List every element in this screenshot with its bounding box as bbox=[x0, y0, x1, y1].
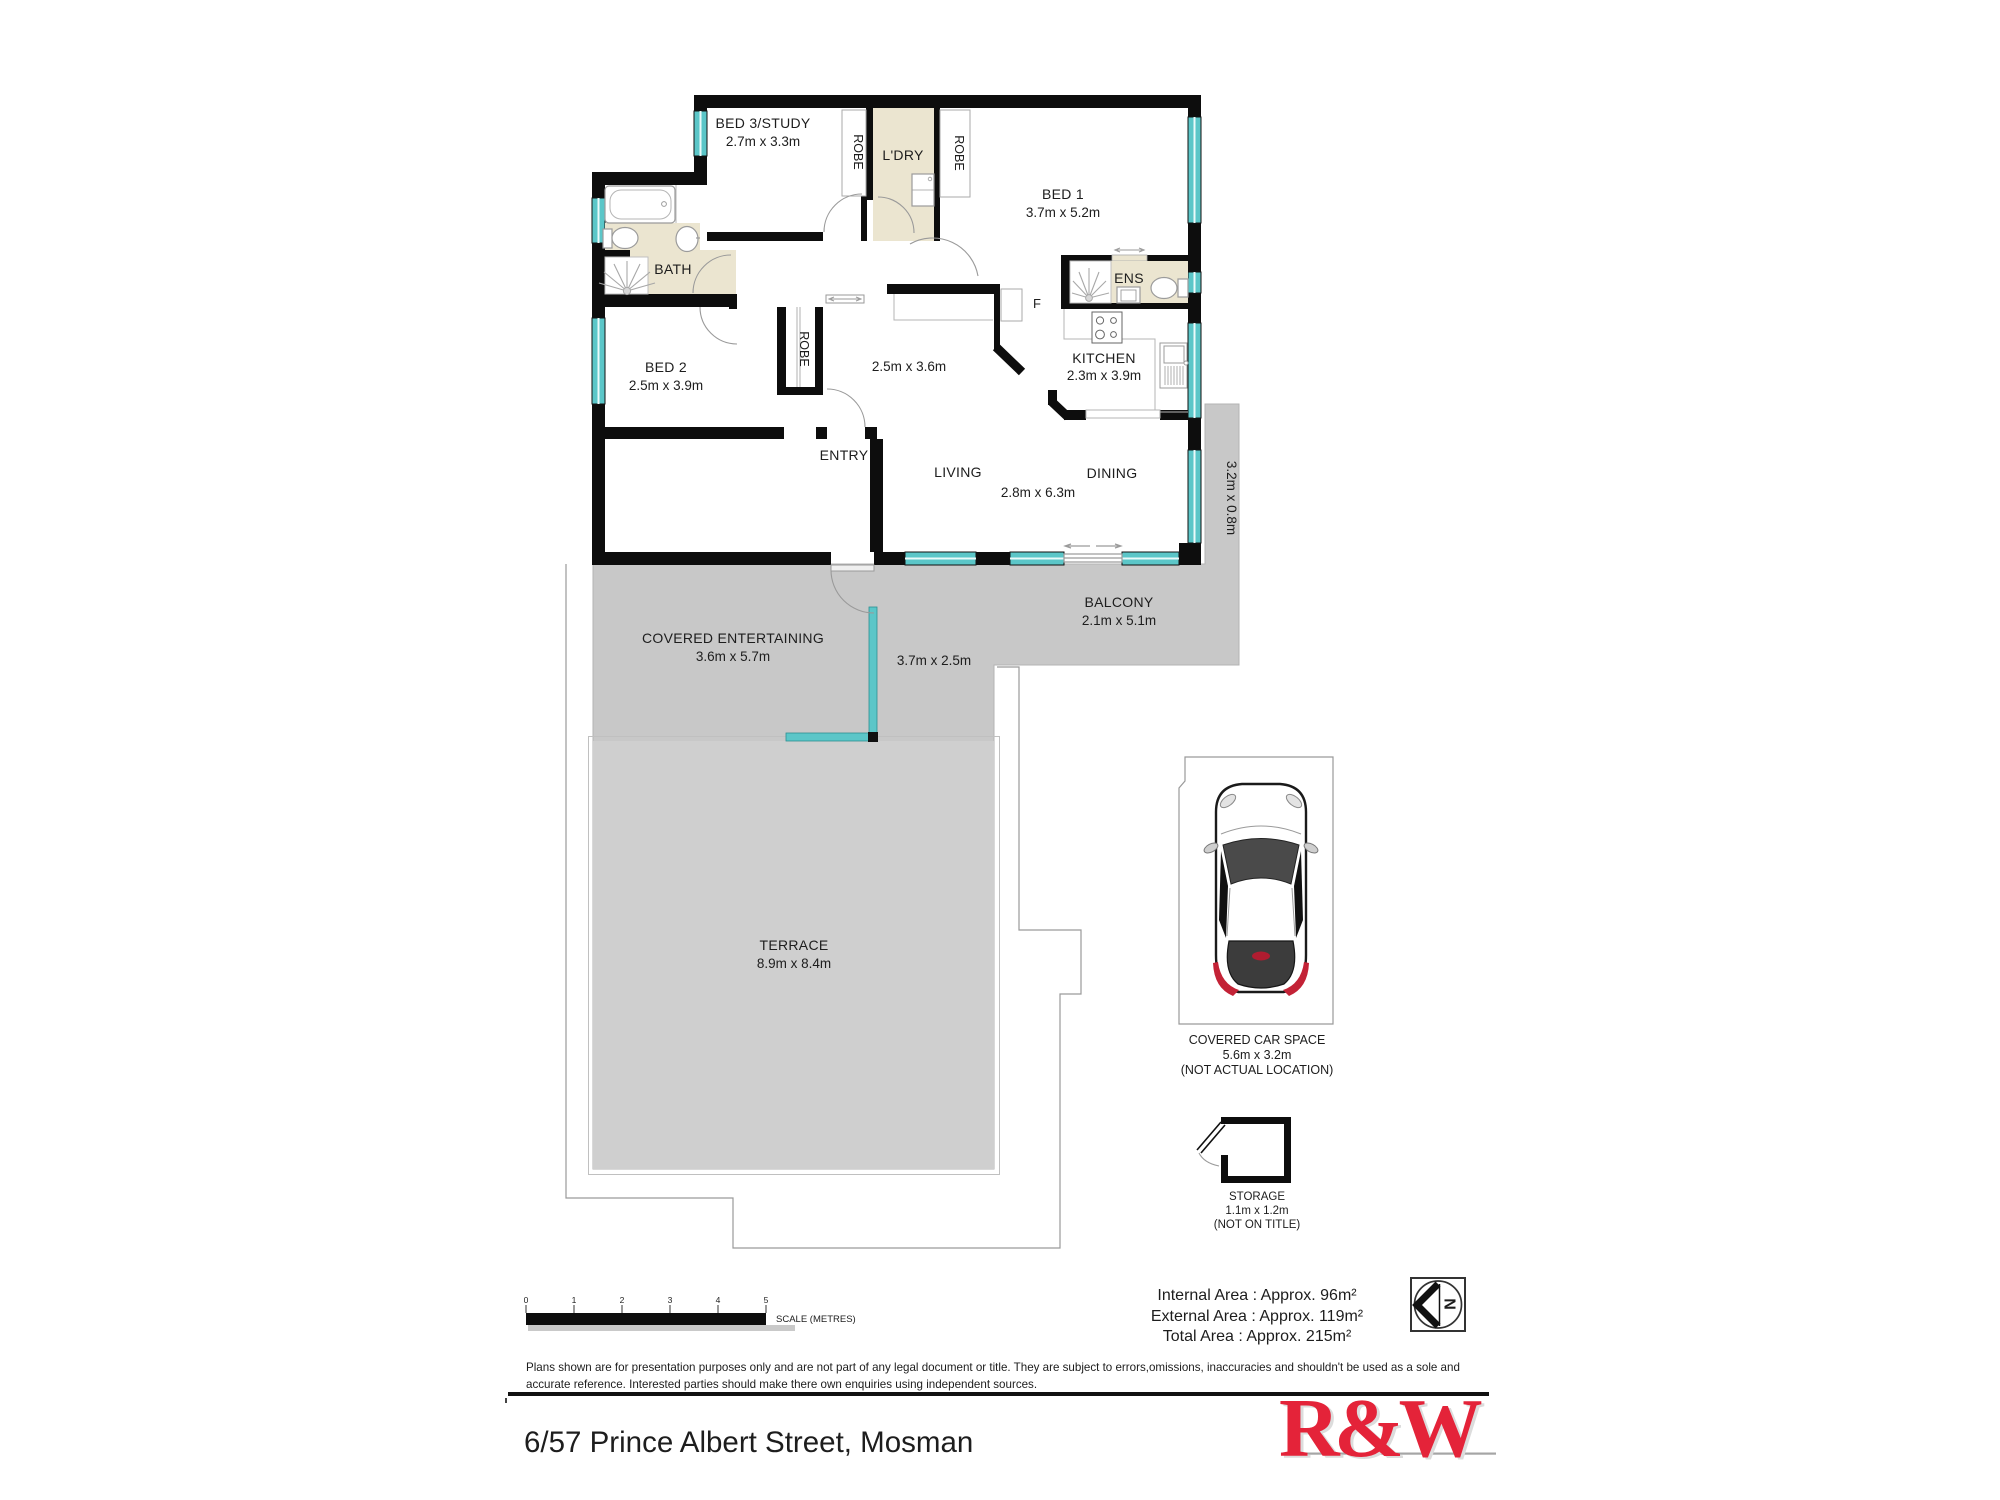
svg-text:COVERED CAR SPACE: COVERED CAR SPACE bbox=[1189, 1033, 1326, 1047]
svg-text:2.3m x 3.9m: 2.3m x 3.9m bbox=[1067, 368, 1141, 383]
svg-text:ROBE: ROBE bbox=[797, 331, 811, 366]
svg-text:BED 2: BED 2 bbox=[645, 359, 687, 375]
svg-text:(NOT ACTUAL LOCATION): (NOT ACTUAL LOCATION) bbox=[1181, 1063, 1334, 1077]
svg-text:SCALE (METRES): SCALE (METRES) bbox=[776, 1314, 856, 1325]
svg-text:2.5m x 3.6m: 2.5m x 3.6m bbox=[872, 359, 946, 374]
svg-text:3: 3 bbox=[668, 1295, 673, 1305]
svg-text:(NOT ON TITLE): (NOT ON TITLE) bbox=[1214, 1219, 1301, 1231]
svg-text:KITCHEN: KITCHEN bbox=[1072, 350, 1136, 366]
svg-text:Plans shown are for presentati: Plans shown are for presentation purpose… bbox=[526, 1361, 1460, 1374]
svg-text:1.1m x 1.2m: 1.1m x 1.2m bbox=[1225, 1205, 1288, 1217]
svg-text:TERRACE: TERRACE bbox=[760, 937, 829, 953]
svg-text:Total Area : Approx. 215m²: Total Area : Approx. 215m² bbox=[1163, 1328, 1352, 1345]
svg-text:ROBE: ROBE bbox=[851, 134, 865, 169]
svg-text:3.2m x 0.8m: 3.2m x 0.8m bbox=[1224, 461, 1239, 535]
svg-text:3.7m x 5.2m: 3.7m x 5.2m bbox=[1026, 205, 1100, 220]
svg-text:8.9m x 8.4m: 8.9m x 8.4m bbox=[757, 956, 831, 971]
svg-text:5.6m x 3.2m: 5.6m x 3.2m bbox=[1223, 1048, 1292, 1062]
svg-text:ENS: ENS bbox=[1114, 270, 1144, 286]
svg-text:ENTRY: ENTRY bbox=[820, 447, 869, 463]
svg-text:LIVING: LIVING bbox=[934, 464, 982, 480]
svg-text:BED 1: BED 1 bbox=[1042, 186, 1084, 202]
svg-text:BED 3/STUDY: BED 3/STUDY bbox=[715, 115, 810, 131]
svg-text:2.7m x 3.3m: 2.7m x 3.3m bbox=[726, 134, 800, 149]
svg-text:ROBE: ROBE bbox=[952, 135, 966, 170]
svg-text:3.6m x 5.7m: 3.6m x 5.7m bbox=[696, 649, 770, 664]
svg-text:Internal Area : Approx. 96m²: Internal Area : Approx. 96m² bbox=[1157, 1287, 1357, 1304]
svg-text:BATH: BATH bbox=[654, 261, 692, 277]
svg-text:2.1m x 5.1m: 2.1m x 5.1m bbox=[1082, 613, 1156, 628]
svg-text:COVERED ENTERTAINING: COVERED ENTERTAINING bbox=[642, 630, 824, 646]
svg-text:0: 0 bbox=[524, 1295, 529, 1305]
svg-text:BALCONY: BALCONY bbox=[1084, 594, 1153, 610]
svg-text:6/57 Prince Albert Street, Mos: 6/57 Prince Albert Street, Mosman bbox=[524, 1426, 973, 1459]
svg-text:2.8m x 6.3m: 2.8m x 6.3m bbox=[1001, 485, 1075, 500]
svg-text:2: 2 bbox=[620, 1295, 625, 1305]
svg-text:L'DRY: L'DRY bbox=[882, 147, 924, 163]
svg-text:3.7m x 2.5m: 3.7m x 2.5m bbox=[897, 653, 971, 668]
svg-text:5: 5 bbox=[764, 1295, 769, 1305]
svg-text:accurate reference. Interested: accurate reference. Interested parties s… bbox=[526, 1378, 1037, 1391]
svg-text:F: F bbox=[1033, 296, 1041, 311]
svg-text:N: N bbox=[1441, 1298, 1458, 1310]
svg-text:4: 4 bbox=[716, 1295, 721, 1305]
svg-text:External Area : Approx. 119m²: External Area : Approx. 119m² bbox=[1151, 1308, 1364, 1325]
svg-text:2.5m x 3.9m: 2.5m x 3.9m bbox=[629, 378, 703, 393]
svg-text:STORAGE: STORAGE bbox=[1229, 1191, 1285, 1203]
svg-text:1: 1 bbox=[572, 1295, 577, 1305]
svg-text:DINING: DINING bbox=[1087, 465, 1138, 481]
svg-text:R&W: R&W bbox=[1279, 1382, 1482, 1475]
